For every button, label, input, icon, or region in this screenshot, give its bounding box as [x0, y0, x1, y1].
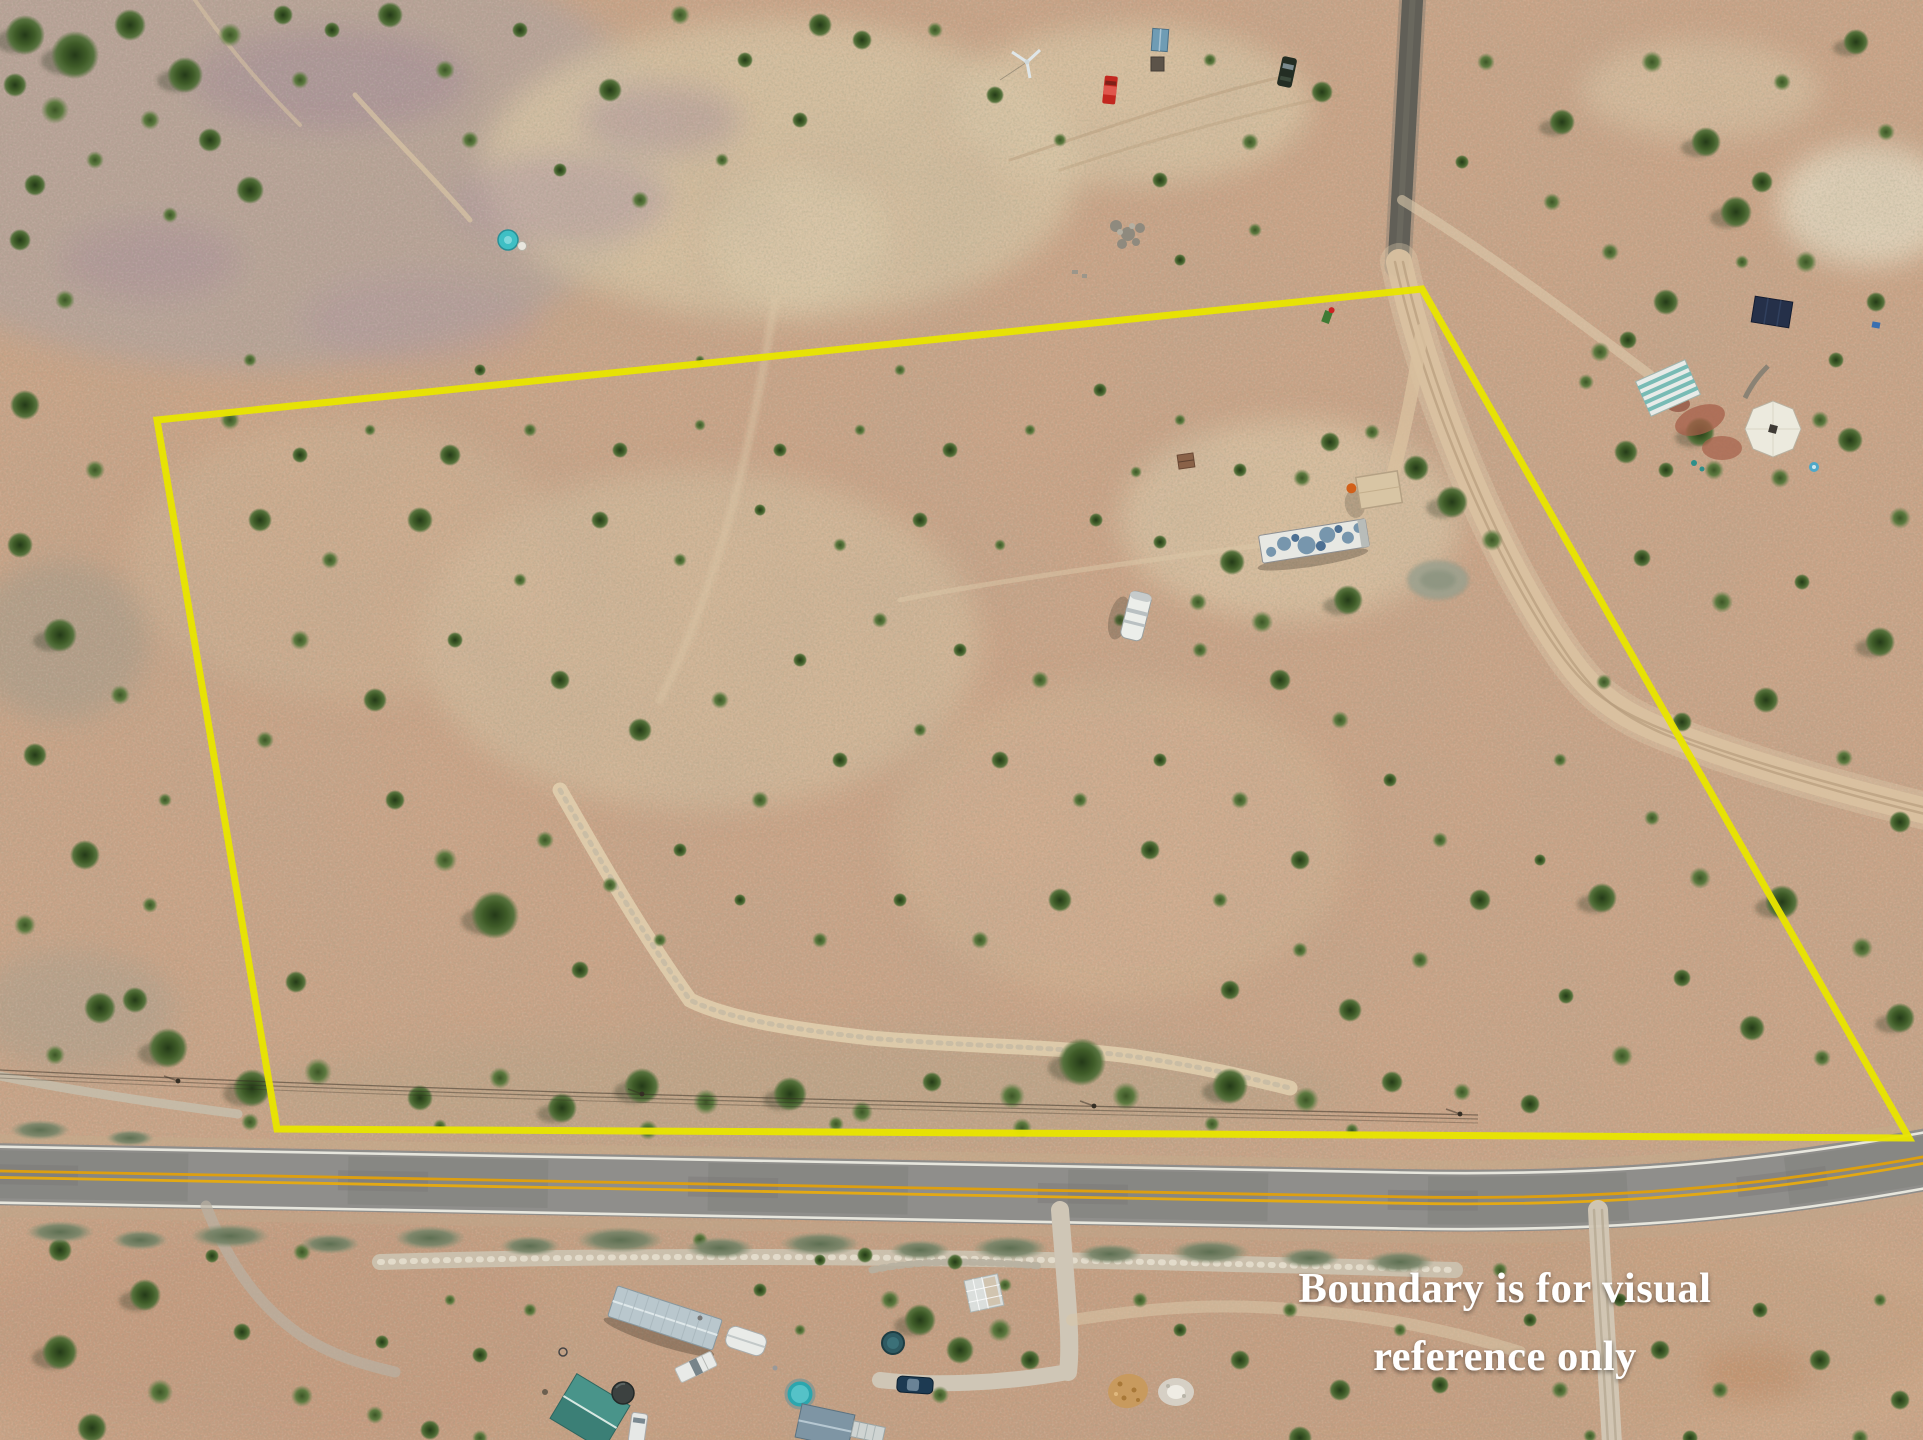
aerial-photo-canvas: Boundary is for visual reference only — [0, 0, 1923, 1440]
solar-panel — [1751, 296, 1793, 328]
yard-junk — [542, 1389, 548, 1395]
dark-shed — [1151, 57, 1164, 71]
dark-blue-car — [896, 1376, 933, 1394]
teal-chair — [1700, 467, 1705, 472]
small-cabin — [1177, 453, 1195, 469]
dark-pool — [882, 1332, 904, 1354]
octagon-yurt — [1745, 401, 1801, 457]
greenhouse — [964, 1274, 1004, 1312]
s-driveway — [1060, 1210, 1069, 1372]
yard-junk — [698, 1316, 703, 1321]
stock-pond — [1408, 561, 1468, 599]
round-pool — [786, 1380, 814, 1408]
aerial-photo: Boundary is for visual reference only — [0, 0, 1923, 1440]
disclaimer-text-line2: reference only — [1373, 1333, 1637, 1380]
disclaimer-text-line1: Boundary is for visual — [1299, 1265, 1712, 1312]
teal-chair — [1691, 460, 1697, 466]
kiddie-pool-center — [1812, 465, 1816, 469]
ash-patch — [1158, 1378, 1194, 1406]
blue-shed — [1151, 28, 1168, 51]
small-tank — [518, 242, 527, 251]
yard-junk — [773, 1366, 778, 1371]
dome-tank — [612, 1382, 634, 1404]
